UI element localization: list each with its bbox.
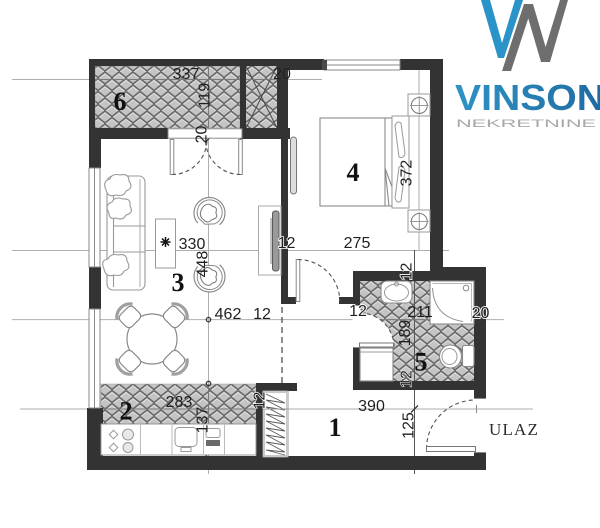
svg-text:VINSON: VINSON [455, 77, 600, 118]
svg-text:372: 372 [398, 160, 415, 187]
svg-text:12: 12 [251, 392, 268, 410]
svg-text:20: 20 [273, 66, 291, 83]
svg-text:125: 125 [400, 412, 417, 439]
svg-text:12: 12 [349, 303, 367, 320]
svg-text:4: 4 [347, 158, 360, 187]
svg-text:330: 330 [179, 236, 206, 253]
svg-text:12: 12 [398, 263, 415, 281]
svg-text:5: 5 [415, 348, 428, 377]
svg-text:137: 137 [194, 407, 211, 434]
svg-text:275: 275 [344, 235, 371, 252]
svg-text:12: 12 [398, 370, 415, 388]
svg-text:20: 20 [472, 305, 490, 322]
svg-text:462: 462 [215, 306, 242, 323]
svg-text:6: 6 [114, 87, 127, 116]
svg-text:189: 189 [397, 320, 414, 347]
svg-text:20: 20 [193, 126, 210, 144]
svg-text:12: 12 [253, 306, 271, 323]
svg-text:NEKRETNINE: NEKRETNINE [456, 118, 596, 130]
svg-text:337: 337 [173, 66, 200, 83]
svg-text:390: 390 [358, 398, 385, 415]
svg-text:ULAZ: ULAZ [489, 420, 539, 439]
svg-text:1: 1 [329, 413, 342, 442]
svg-text:119: 119 [196, 83, 213, 109]
svg-text:283: 283 [166, 394, 193, 411]
svg-text:2: 2 [120, 397, 133, 426]
svg-text:3: 3 [172, 268, 185, 297]
svg-text:211: 211 [407, 304, 433, 321]
svg-text:12: 12 [278, 235, 296, 252]
svg-text:448: 448 [194, 251, 211, 278]
